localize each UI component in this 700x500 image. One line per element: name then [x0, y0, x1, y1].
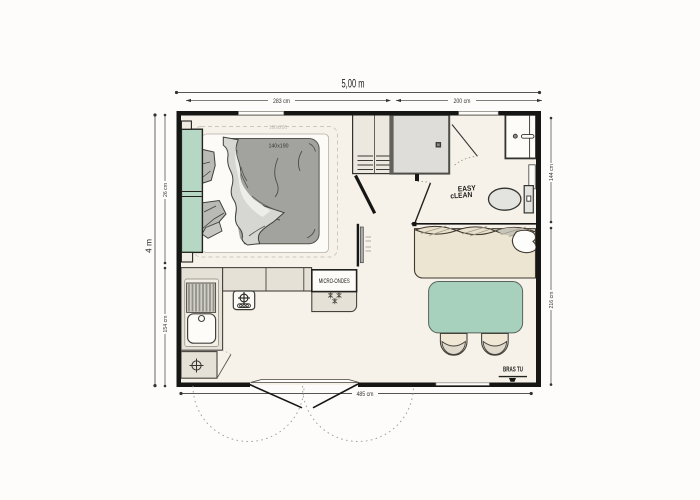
svg-text:154 cm: 154 cm [163, 315, 169, 332]
svg-text:4 m: 4 m [144, 239, 154, 253]
svg-text:485 cm: 485 cm [357, 391, 374, 398]
svg-text:283 cm: 283 cm [273, 98, 290, 105]
svg-text:160x200: 160x200 [269, 125, 287, 131]
svg-text:216 cm: 216 cm [549, 291, 555, 308]
svg-text:5,00 m: 5,00 m [342, 79, 365, 91]
svg-text:200 cm: 200 cm [454, 98, 471, 105]
svg-text:BRAS TU: BRAS TU [503, 367, 523, 374]
svg-text:MICRO-ONDES: MICRO-ONDES [319, 278, 350, 285]
svg-text:144 cm: 144 cm [549, 164, 555, 181]
svg-text:26 cm: 26 cm [163, 183, 169, 197]
svg-text:cLEAN: cLEAN [450, 190, 473, 201]
svg-text:140x190: 140x190 [269, 144, 289, 150]
